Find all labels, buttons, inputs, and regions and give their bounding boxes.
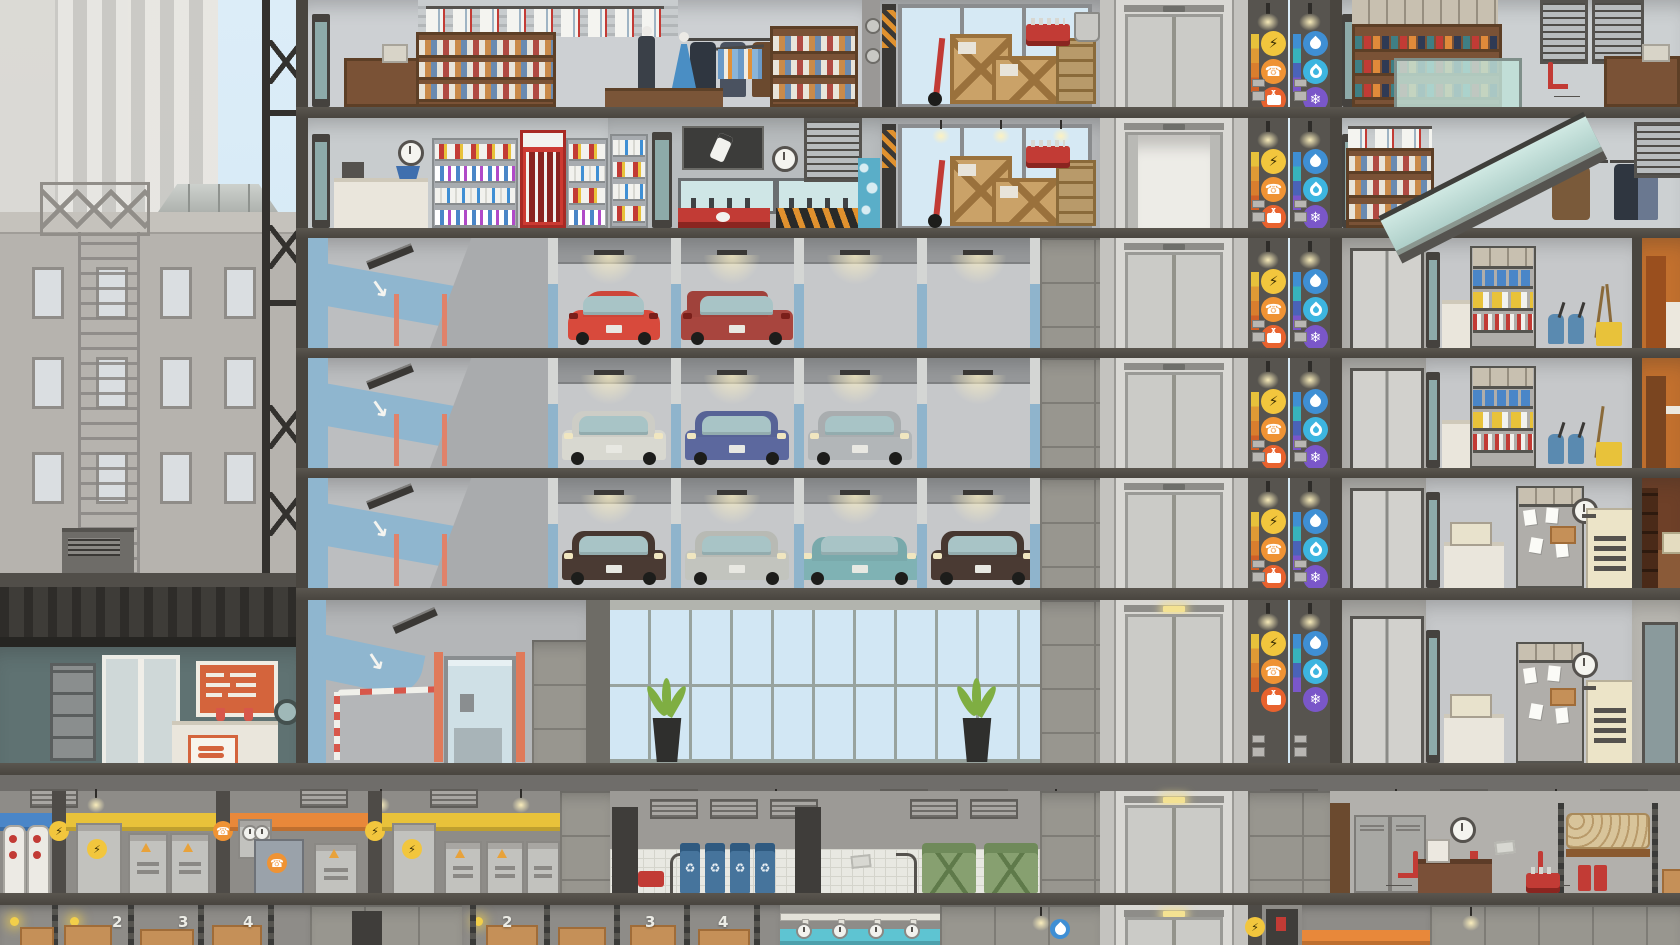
- wall-clock: [1450, 817, 1476, 843]
- sack-pile: [1566, 813, 1650, 849]
- storage-bin-number: 3: [645, 913, 655, 931]
- utility-shaft-water[interactable]: ❄: [1290, 238, 1330, 348]
- fan-vent: [865, 18, 881, 34]
- lobby-wall: [586, 600, 610, 763]
- room-door[interactable]: [1426, 492, 1440, 588]
- elevator-doors-open[interactable]: [1125, 132, 1223, 228]
- parking-entrance[interactable]: ↘: [308, 600, 586, 763]
- utility-icon-column: ⚡☎: [1261, 28, 1288, 107]
- hall-doors[interactable]: [1342, 358, 1426, 468]
- elevator-basement-2[interactable]: [1100, 905, 1248, 945]
- shelf-lamp: [10, 917, 19, 926]
- store-door[interactable]: [652, 132, 672, 228]
- phone-store[interactable]: [608, 118, 880, 228]
- cafe-door[interactable]: [1646, 376, 1666, 468]
- transformer: [76, 823, 122, 897]
- parking-ramp[interactable]: ↘: [308, 478, 548, 588]
- interior-wall: [1330, 478, 1342, 588]
- shoe-store[interactable]: [1342, 0, 1680, 107]
- parked-car-rear: [568, 287, 660, 345]
- parking-post: [1030, 238, 1040, 348]
- telecom-room[interactable]: ☎: [230, 791, 368, 893]
- elevator-doors[interactable]: [1125, 14, 1223, 107]
- electricity-icon: ⚡: [1245, 917, 1265, 937]
- basement-slab: [0, 893, 1680, 905]
- fax-machine: [1450, 522, 1492, 546]
- walking-woman: [366, 680, 382, 726]
- vacuum-cleaner: [1548, 314, 1564, 344]
- utility-shaft-water[interactable]: ❄: [1290, 600, 1330, 763]
- gas-icon: [1303, 417, 1328, 442]
- double-door[interactable]: [1350, 248, 1424, 354]
- bucket: [1074, 12, 1100, 42]
- background-window: [32, 452, 64, 504]
- electrical-room-2[interactable]: ⚡: [382, 791, 560, 893]
- junction-box: [1252, 440, 1265, 448]
- junction-box: [1252, 572, 1265, 582]
- utility-door[interactable]: [1266, 909, 1298, 945]
- shaft-lamp: [1308, 481, 1312, 492]
- junction-box: [1294, 560, 1307, 568]
- elevator[interactable]: [1100, 358, 1248, 468]
- background-window: [224, 452, 256, 504]
- hvac-icon: ❄: [1303, 687, 1328, 712]
- recycle-bin: ♻: [705, 843, 725, 893]
- utility-shaft-water[interactable]: ❄: [1290, 358, 1330, 468]
- water-badge: [1050, 919, 1070, 939]
- newspaper: [850, 854, 871, 869]
- supply-shelf[interactable]: [1470, 366, 1536, 468]
- shoe-box-stacks: [1352, 0, 1498, 26]
- hall-doors[interactable]: [1342, 238, 1426, 348]
- storage-box: [140, 929, 194, 945]
- utility-icon-column: ❄: [1303, 28, 1330, 107]
- elevator-indicator: [1163, 244, 1185, 250]
- parking-post: [671, 238, 681, 348]
- junction-box: [1252, 200, 1265, 208]
- floor-slab: [296, 468, 1680, 478]
- game-viewport: ⚡☎ ❄: [0, 0, 1680, 945]
- shaft-lamp: [1308, 121, 1312, 132]
- storage-bin-number: 2: [502, 913, 512, 931]
- stall-light-glow: [826, 255, 884, 285]
- workshop-storage[interactable]: [880, 0, 1100, 107]
- stall-light-glow: [826, 495, 884, 525]
- pressure-gauge: [904, 923, 920, 939]
- parked-car: [801, 527, 919, 585]
- floor-slab: [296, 348, 1680, 358]
- closet-door[interactable]: [1426, 372, 1440, 468]
- junction-box: [1294, 91, 1307, 101]
- cash-register: [382, 44, 408, 63]
- menu-board: [196, 661, 278, 717]
- junction-box: [1294, 212, 1307, 222]
- electricity-icon: ⚡: [1261, 149, 1286, 174]
- wall-clock: [1572, 652, 1598, 678]
- utility-riser-strip: [1251, 634, 1259, 692]
- mannequin-head: [642, 26, 652, 36]
- fur-coat: [1552, 164, 1590, 220]
- phone-icon: ☎: [1261, 659, 1286, 684]
- break-table: [1418, 859, 1492, 893]
- string-light: [1060, 120, 1062, 129]
- storage-box: [64, 925, 112, 945]
- window-blinds: [1634, 122, 1680, 178]
- utility-icon-column: ⚡☎: [1261, 628, 1288, 715]
- closet-door[interactable]: [1426, 252, 1440, 348]
- junction-box: [1252, 79, 1265, 87]
- recycle-bins: ♻♻♻♻: [680, 831, 780, 893]
- phone-shop-sign: [682, 126, 764, 170]
- elevator-doors[interactable]: [1125, 372, 1223, 468]
- workshop-storage[interactable]: [880, 118, 1100, 228]
- dresses-on-rack: [718, 49, 762, 79]
- background-window: [224, 357, 256, 409]
- fax-desk: [1444, 542, 1504, 592]
- utility-icon-column: ⚡☎: [1261, 506, 1288, 588]
- clothes-shelf[interactable]: [770, 26, 858, 107]
- double-door[interactable]: [1350, 616, 1424, 769]
- supply-shelf[interactable]: [1470, 246, 1536, 348]
- copier[interactable]: [1586, 508, 1634, 592]
- basement-wall: [1248, 791, 1330, 893]
- electrical-room[interactable]: ⚡: [66, 791, 216, 893]
- junction-box: [1252, 91, 1265, 101]
- elevator[interactable]: [1100, 0, 1248, 107]
- room-door[interactable]: [1426, 630, 1440, 763]
- utility-icon-column: ⚡☎: [1261, 266, 1288, 348]
- clothing-store[interactable]: [308, 0, 862, 107]
- shopper: [358, 32, 374, 78]
- ramp-arrow-icon: ↘: [362, 646, 387, 678]
- elevator-doors[interactable]: [1125, 614, 1223, 763]
- ramp-arrow-icon: ↘: [367, 273, 392, 304]
- parking-stalls[interactable]: [548, 478, 1040, 588]
- parking-post: [548, 478, 558, 588]
- mop-bucket: [1596, 322, 1622, 346]
- service-door[interactable]: [352, 911, 382, 945]
- fire-escape: [78, 232, 140, 575]
- red-canister: [1578, 865, 1591, 891]
- wall-vent: [650, 799, 698, 819]
- junction-box: [1252, 452, 1265, 462]
- electricity-icon: ⚡: [87, 839, 107, 859]
- glass-lobby[interactable]: [610, 600, 1040, 763]
- locker: [1354, 815, 1390, 897]
- pressure-gauge: [832, 923, 848, 939]
- parking-stalls[interactable]: [548, 238, 1040, 348]
- basement-2: 234 234: [0, 905, 1680, 945]
- shaft-lamp: [1266, 3, 1270, 14]
- janitor-closet[interactable]: [1426, 358, 1632, 468]
- checkout-counter[interactable]: [334, 178, 428, 232]
- service-wall: [1040, 600, 1100, 763]
- double-door[interactable]: [1350, 488, 1424, 594]
- rack-upright: [1652, 803, 1658, 893]
- junction-box: [1252, 560, 1265, 568]
- elevator[interactable]: [1100, 118, 1248, 228]
- green-dumpster: [922, 843, 976, 893]
- water-icon: [1303, 509, 1328, 534]
- water-icon: [1303, 149, 1328, 174]
- coffee-maker: [1426, 839, 1450, 863]
- stall-light-glow: [949, 255, 1007, 285]
- utility-icon-column: ❄: [1303, 266, 1330, 348]
- parking-stalls[interactable]: [548, 358, 1040, 468]
- fan-vent: [865, 48, 881, 64]
- mannequin-head: [679, 32, 689, 42]
- water-plant-room[interactable]: [0, 791, 52, 893]
- cafe-counter: [1666, 302, 1680, 348]
- desk: [1658, 550, 1680, 588]
- parking-post: [794, 478, 804, 588]
- boiler-tank: [27, 825, 50, 897]
- paper-shelf[interactable]: [1516, 486, 1584, 588]
- basement-wall: [940, 905, 1100, 945]
- elevator[interactable]: [1100, 238, 1248, 348]
- convenience-store[interactable]: [308, 118, 608, 228]
- grocery-shelf[interactable]: [566, 138, 608, 228]
- junction-box: [1294, 332, 1307, 342]
- wall-clock: [772, 146, 798, 172]
- copy-room[interactable]: [1426, 600, 1632, 763]
- junction-box: [1294, 320, 1307, 328]
- parked-car: [562, 407, 666, 465]
- parking-ramp[interactable]: ↘: [308, 238, 548, 348]
- junction-box: [1294, 572, 1307, 582]
- stall-light-glow: [703, 375, 761, 405]
- phone-icon: ☎: [1261, 417, 1286, 442]
- utility-shaft-water[interactable]: ❄: [1290, 0, 1330, 107]
- elevator-doors[interactable]: [1125, 805, 1223, 893]
- elevator-basement[interactable]: [1100, 791, 1248, 893]
- stall-light-glow: [703, 255, 761, 285]
- utility-shaft-power[interactable]: ⚡☎: [1248, 0, 1288, 107]
- newspaper: [1494, 840, 1515, 855]
- double-door[interactable]: [1350, 368, 1424, 474]
- maintenance-worker: [542, 831, 558, 877]
- room-door[interactable]: [1330, 803, 1350, 893]
- phone-icon: ☎: [1261, 297, 1286, 322]
- storage-bin-number: 2: [112, 913, 122, 931]
- storage-bin-number: 4: [718, 913, 728, 931]
- junction-box: [1294, 747, 1307, 757]
- service-door[interactable]: [795, 807, 821, 893]
- storage-room-b[interactable]: 234: [462, 905, 780, 945]
- cafe-corner[interactable]: [1642, 358, 1680, 468]
- cafe-door[interactable]: [1646, 256, 1666, 348]
- utility-shaft-water[interactable]: ❄: [1290, 478, 1330, 588]
- elevator[interactable]: [1100, 478, 1248, 588]
- utility-shaft-power[interactable]: ⚡☎: [1248, 358, 1288, 468]
- queue-customer: [31, 691, 47, 737]
- shaft-lamp: [1308, 241, 1312, 252]
- drawer-cabinet: [1056, 160, 1096, 226]
- toolbox: [1026, 24, 1070, 46]
- stall-light-glow: [580, 255, 638, 285]
- entry-pillar: [516, 652, 525, 762]
- guard-booth[interactable]: [444, 656, 516, 770]
- ramp-post: [442, 294, 447, 346]
- shaft-lamp: [1266, 603, 1270, 614]
- booth-counter: [454, 728, 502, 766]
- maintenance-worker: [406, 831, 422, 877]
- clothes-shelf[interactable]: [416, 32, 556, 107]
- mast-rail: [262, 0, 270, 575]
- computer: [1662, 532, 1680, 554]
- service-post: [368, 791, 382, 893]
- background-building: [0, 212, 300, 575]
- elevator-ground[interactable]: [1100, 600, 1248, 763]
- shaft-lamp: [1266, 481, 1270, 492]
- shopping-basket: [396, 166, 420, 179]
- rooftop-railing: [40, 182, 150, 236]
- red-canister: [1594, 865, 1607, 891]
- vent-strip-room: [862, 0, 880, 107]
- background-window: [160, 452, 192, 504]
- utility-shaft-power[interactable]: ⚡☎: [1248, 238, 1288, 348]
- barrier-post: [334, 692, 340, 760]
- cashier: [1630, 30, 1646, 76]
- grocery-shelf[interactable]: [432, 138, 518, 228]
- basement-1: ⚡ ⚡ ☎ ☎ ⚡ ⚡: [0, 775, 1680, 893]
- shutter-blinds: [804, 118, 862, 182]
- parking-post: [794, 358, 804, 468]
- parking-post: [1030, 478, 1040, 588]
- water-pump-room[interactable]: [780, 905, 940, 945]
- toolbox: [1026, 146, 1070, 168]
- stall-light-glow: [580, 375, 638, 405]
- walking-customer: [1578, 36, 1594, 82]
- cafe-corner[interactable]: [1642, 238, 1680, 348]
- ticket-machine: [460, 694, 474, 712]
- utility-shaft-water[interactable]: ❄: [1290, 118, 1330, 228]
- cable_tv-icon: [1261, 687, 1286, 712]
- ramp-wall-strip: [308, 600, 326, 763]
- worker-on-break: [1498, 831, 1514, 877]
- interior-wall: [1330, 118, 1342, 228]
- janitor-closet[interactable]: [1426, 238, 1632, 348]
- queue-customer: [16, 689, 32, 735]
- ramp-post: [394, 294, 399, 346]
- parking-post: [671, 478, 681, 588]
- study-office[interactable]: [1642, 478, 1680, 588]
- utility-icon-column: ⚡☎: [1261, 386, 1288, 468]
- hanging-bulb: [1040, 907, 1042, 916]
- elevator-indicator-lit: [1163, 797, 1185, 803]
- shaft-lamp: [1266, 121, 1270, 132]
- junction-box: [1252, 747, 1265, 757]
- shaft-lamp: [1308, 603, 1312, 614]
- ground-slab: [0, 763, 1680, 775]
- parking-post: [671, 358, 681, 468]
- utility-icon-column: ❄: [1303, 506, 1330, 588]
- green-dumpster: [984, 843, 1038, 893]
- trash-room[interactable]: ♻♻♻♻: [610, 791, 1040, 893]
- copier[interactable]: [1586, 680, 1634, 767]
- electricity-icon: ⚡: [1261, 31, 1286, 56]
- floor-slab: [296, 228, 1680, 238]
- vacuum-cleaner: [1568, 434, 1584, 464]
- wall-vent: [710, 799, 758, 819]
- store-door[interactable]: [312, 14, 330, 107]
- store-door[interactable]: [312, 134, 330, 228]
- stall-light-glow: [703, 495, 761, 525]
- recycle-bin: ♻: [680, 843, 700, 893]
- storage-room-a[interactable]: 234: [0, 905, 310, 945]
- utility-room-orange[interactable]: [1302, 905, 1430, 945]
- annex-cornice: [0, 573, 298, 647]
- junction-box: [1252, 212, 1265, 222]
- electricity-icon: ⚡: [1261, 509, 1286, 534]
- wall-vent: [970, 799, 1018, 819]
- interior-wall: [1632, 358, 1642, 468]
- phone-icon: ☎: [1261, 537, 1286, 562]
- elevator-doors[interactable]: [1125, 917, 1223, 945]
- red-stool: [638, 871, 664, 887]
- pressure-gauge: [868, 923, 884, 939]
- utility-shaft-power[interactable]: ⚡☎: [1248, 600, 1288, 763]
- elevator-doors[interactable]: [1125, 252, 1223, 348]
- utility-shaft-power[interactable]: ⚡☎: [1248, 118, 1288, 228]
- hall-doors[interactable]: [1342, 478, 1426, 588]
- copy-room[interactable]: [1426, 478, 1632, 588]
- recycle-bin: ♻: [755, 843, 775, 893]
- elevator-indicator: [1163, 364, 1185, 370]
- hall-doors[interactable]: [1342, 600, 1426, 763]
- hazard-pole: [882, 124, 896, 228]
- hand-truck-wheel: [928, 214, 942, 228]
- break-room[interactable]: [1330, 791, 1680, 893]
- parking-ramp[interactable]: ↘: [308, 358, 548, 468]
- entrance-light: [392, 607, 438, 634]
- ramp-arrow-icon: ↘: [367, 513, 392, 544]
- interior-wall: [1632, 238, 1642, 348]
- parking-post: [794, 238, 804, 348]
- tall-door[interactable]: [1642, 622, 1678, 769]
- utility-shaft-power[interactable]: ⚡☎: [1248, 478, 1288, 588]
- utility-icon-column: ⚡☎: [1261, 146, 1288, 228]
- storage-bin-number: 3: [178, 913, 188, 931]
- basement-wall: [310, 905, 462, 945]
- gas-icon: [1303, 297, 1328, 322]
- product-shelf: [610, 134, 648, 228]
- storage-box: [212, 925, 262, 945]
- cash-register: [1642, 44, 1670, 62]
- junction-box: [1294, 440, 1307, 448]
- service-door[interactable]: [612, 807, 638, 893]
- fast-food-restaurant[interactable]: [0, 647, 298, 763]
- parking-post: [1030, 358, 1040, 468]
- hand-truck-wheel: [928, 92, 942, 106]
- elevator-doors[interactable]: [1125, 492, 1223, 588]
- barrier-gate-arm[interactable]: [338, 686, 438, 695]
- fax-desk: [1444, 714, 1504, 767]
- junction-box: [1294, 735, 1307, 743]
- hose-stand: [896, 853, 917, 896]
- stall-light-glow: [949, 375, 1007, 405]
- service-wall: [1040, 238, 1100, 348]
- vacuum-cleaner: [1568, 314, 1584, 344]
- parking-post: [917, 478, 927, 588]
- water-icon: [1303, 389, 1328, 414]
- background-window: [160, 267, 192, 319]
- customer-at-counter: [154, 687, 170, 733]
- utility-icon-column: ❄: [1303, 386, 1330, 468]
- drinks-fridge[interactable]: [520, 130, 566, 228]
- shopper: [1444, 38, 1460, 84]
- office-door-room[interactable]: [1632, 600, 1680, 763]
